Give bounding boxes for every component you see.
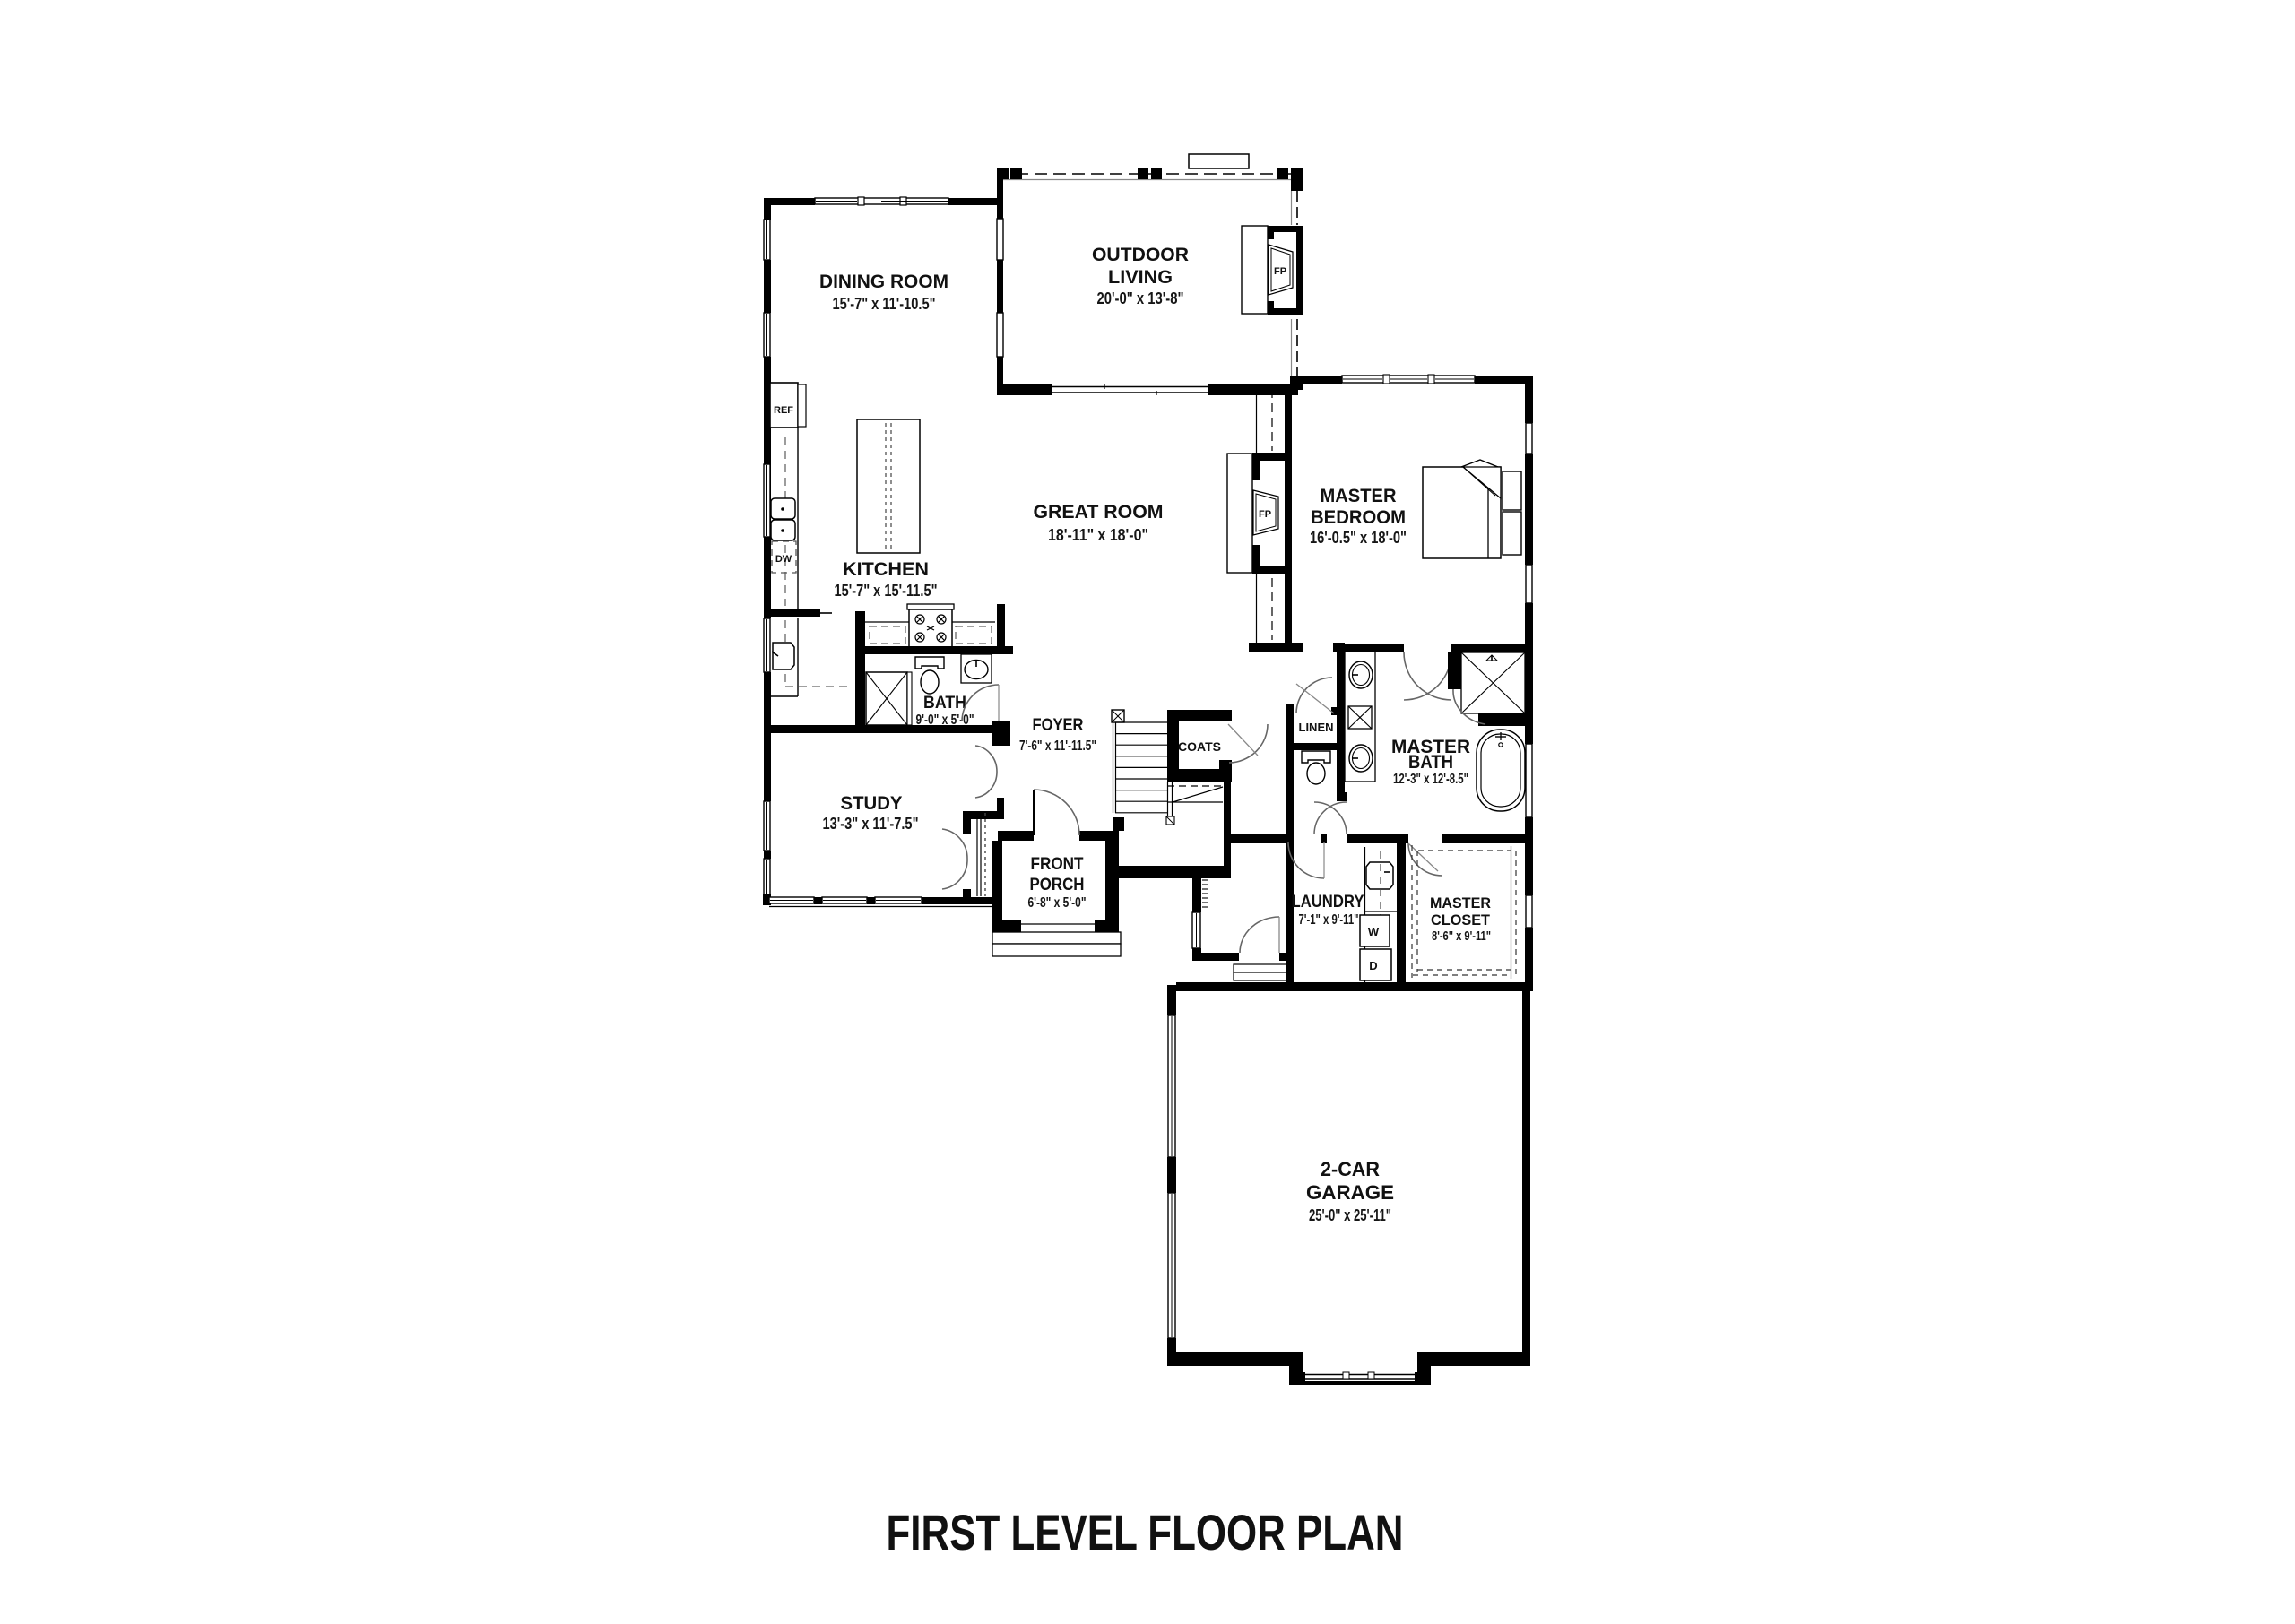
svg-text:DW: DW (775, 554, 792, 565)
svg-text:BATH: BATH (1408, 752, 1453, 773)
svg-text:OUTDOOR: OUTDOOR (1092, 245, 1189, 265)
svg-text:W: W (1368, 925, 1380, 938)
svg-text:6'-8" x 5'-0": 6'-8" x 5'-0" (1028, 895, 1087, 911)
svg-text:FP: FP (1274, 266, 1286, 277)
svg-text:2-CAR: 2-CAR (1321, 1158, 1380, 1180)
svg-text:12'-3" x 12'-8.5": 12'-3" x 12'-8.5" (1393, 772, 1468, 787)
svg-text:20'-0" x 13'-8": 20'-0" x 13'-8" (1097, 289, 1184, 307)
svg-text:PORCH: PORCH (1030, 876, 1085, 894)
svg-text:FOYER: FOYER (1033, 716, 1084, 735)
svg-text:16'-0.5" x 18'-0": 16'-0.5" x 18'-0" (1310, 529, 1407, 547)
svg-text:7'-6" x 11'-11.5": 7'-6" x 11'-11.5" (1019, 739, 1096, 754)
svg-text:13'-3" x 11'-7.5": 13'-3" x 11'-7.5" (823, 815, 919, 833)
svg-text:LAUNDRY: LAUNDRY (1292, 893, 1364, 911)
svg-text:8'-6" x 9'-11": 8'-6" x 9'-11" (1432, 929, 1491, 944)
svg-text:MASTER: MASTER (1430, 894, 1491, 911)
svg-text:BEDROOM: BEDROOM (1311, 507, 1406, 528)
svg-text:FIRST LEVEL FLOOR PLAN: FIRST LEVEL FLOOR PLAN (887, 1504, 1404, 1560)
svg-text:D: D (1369, 959, 1377, 972)
svg-text:GARAGE: GARAGE (1306, 1181, 1394, 1204)
svg-text:CLOSET: CLOSET (1431, 911, 1491, 929)
svg-text:GREAT ROOM: GREAT ROOM (1034, 502, 1164, 523)
svg-text:18'-11" x 18'-0": 18'-11" x 18'-0" (1048, 526, 1148, 544)
svg-text:25'-0" x 25'-11": 25'-0" x 25'-11" (1309, 1206, 1391, 1224)
svg-text:LINEN: LINEN (1299, 721, 1334, 734)
svg-text:15'-7" x 15'-11.5": 15'-7" x 15'-11.5" (835, 582, 938, 600)
svg-text:BATH: BATH (923, 694, 966, 713)
svg-text:9'-0" x 5'-0": 9'-0" x 5'-0" (916, 713, 974, 728)
svg-text:STUDY: STUDY (841, 793, 903, 814)
svg-text:REF: REF (774, 405, 793, 416)
svg-text:LIVING: LIVING (1108, 267, 1173, 288)
svg-text:FRONT: FRONT (1031, 855, 1084, 874)
svg-text:7'-1" x 9'-11": 7'-1" x 9'-11" (1299, 912, 1359, 928)
svg-text:DINING ROOM: DINING ROOM (819, 272, 948, 292)
svg-text:COATS: COATS (1178, 739, 1221, 754)
svg-text:15'-7" x 11'-10.5": 15'-7" x 11'-10.5" (833, 295, 936, 313)
svg-text:FP: FP (1259, 509, 1271, 520)
svg-text:KITCHEN: KITCHEN (843, 559, 929, 580)
svg-text:MASTER: MASTER (1321, 486, 1397, 506)
